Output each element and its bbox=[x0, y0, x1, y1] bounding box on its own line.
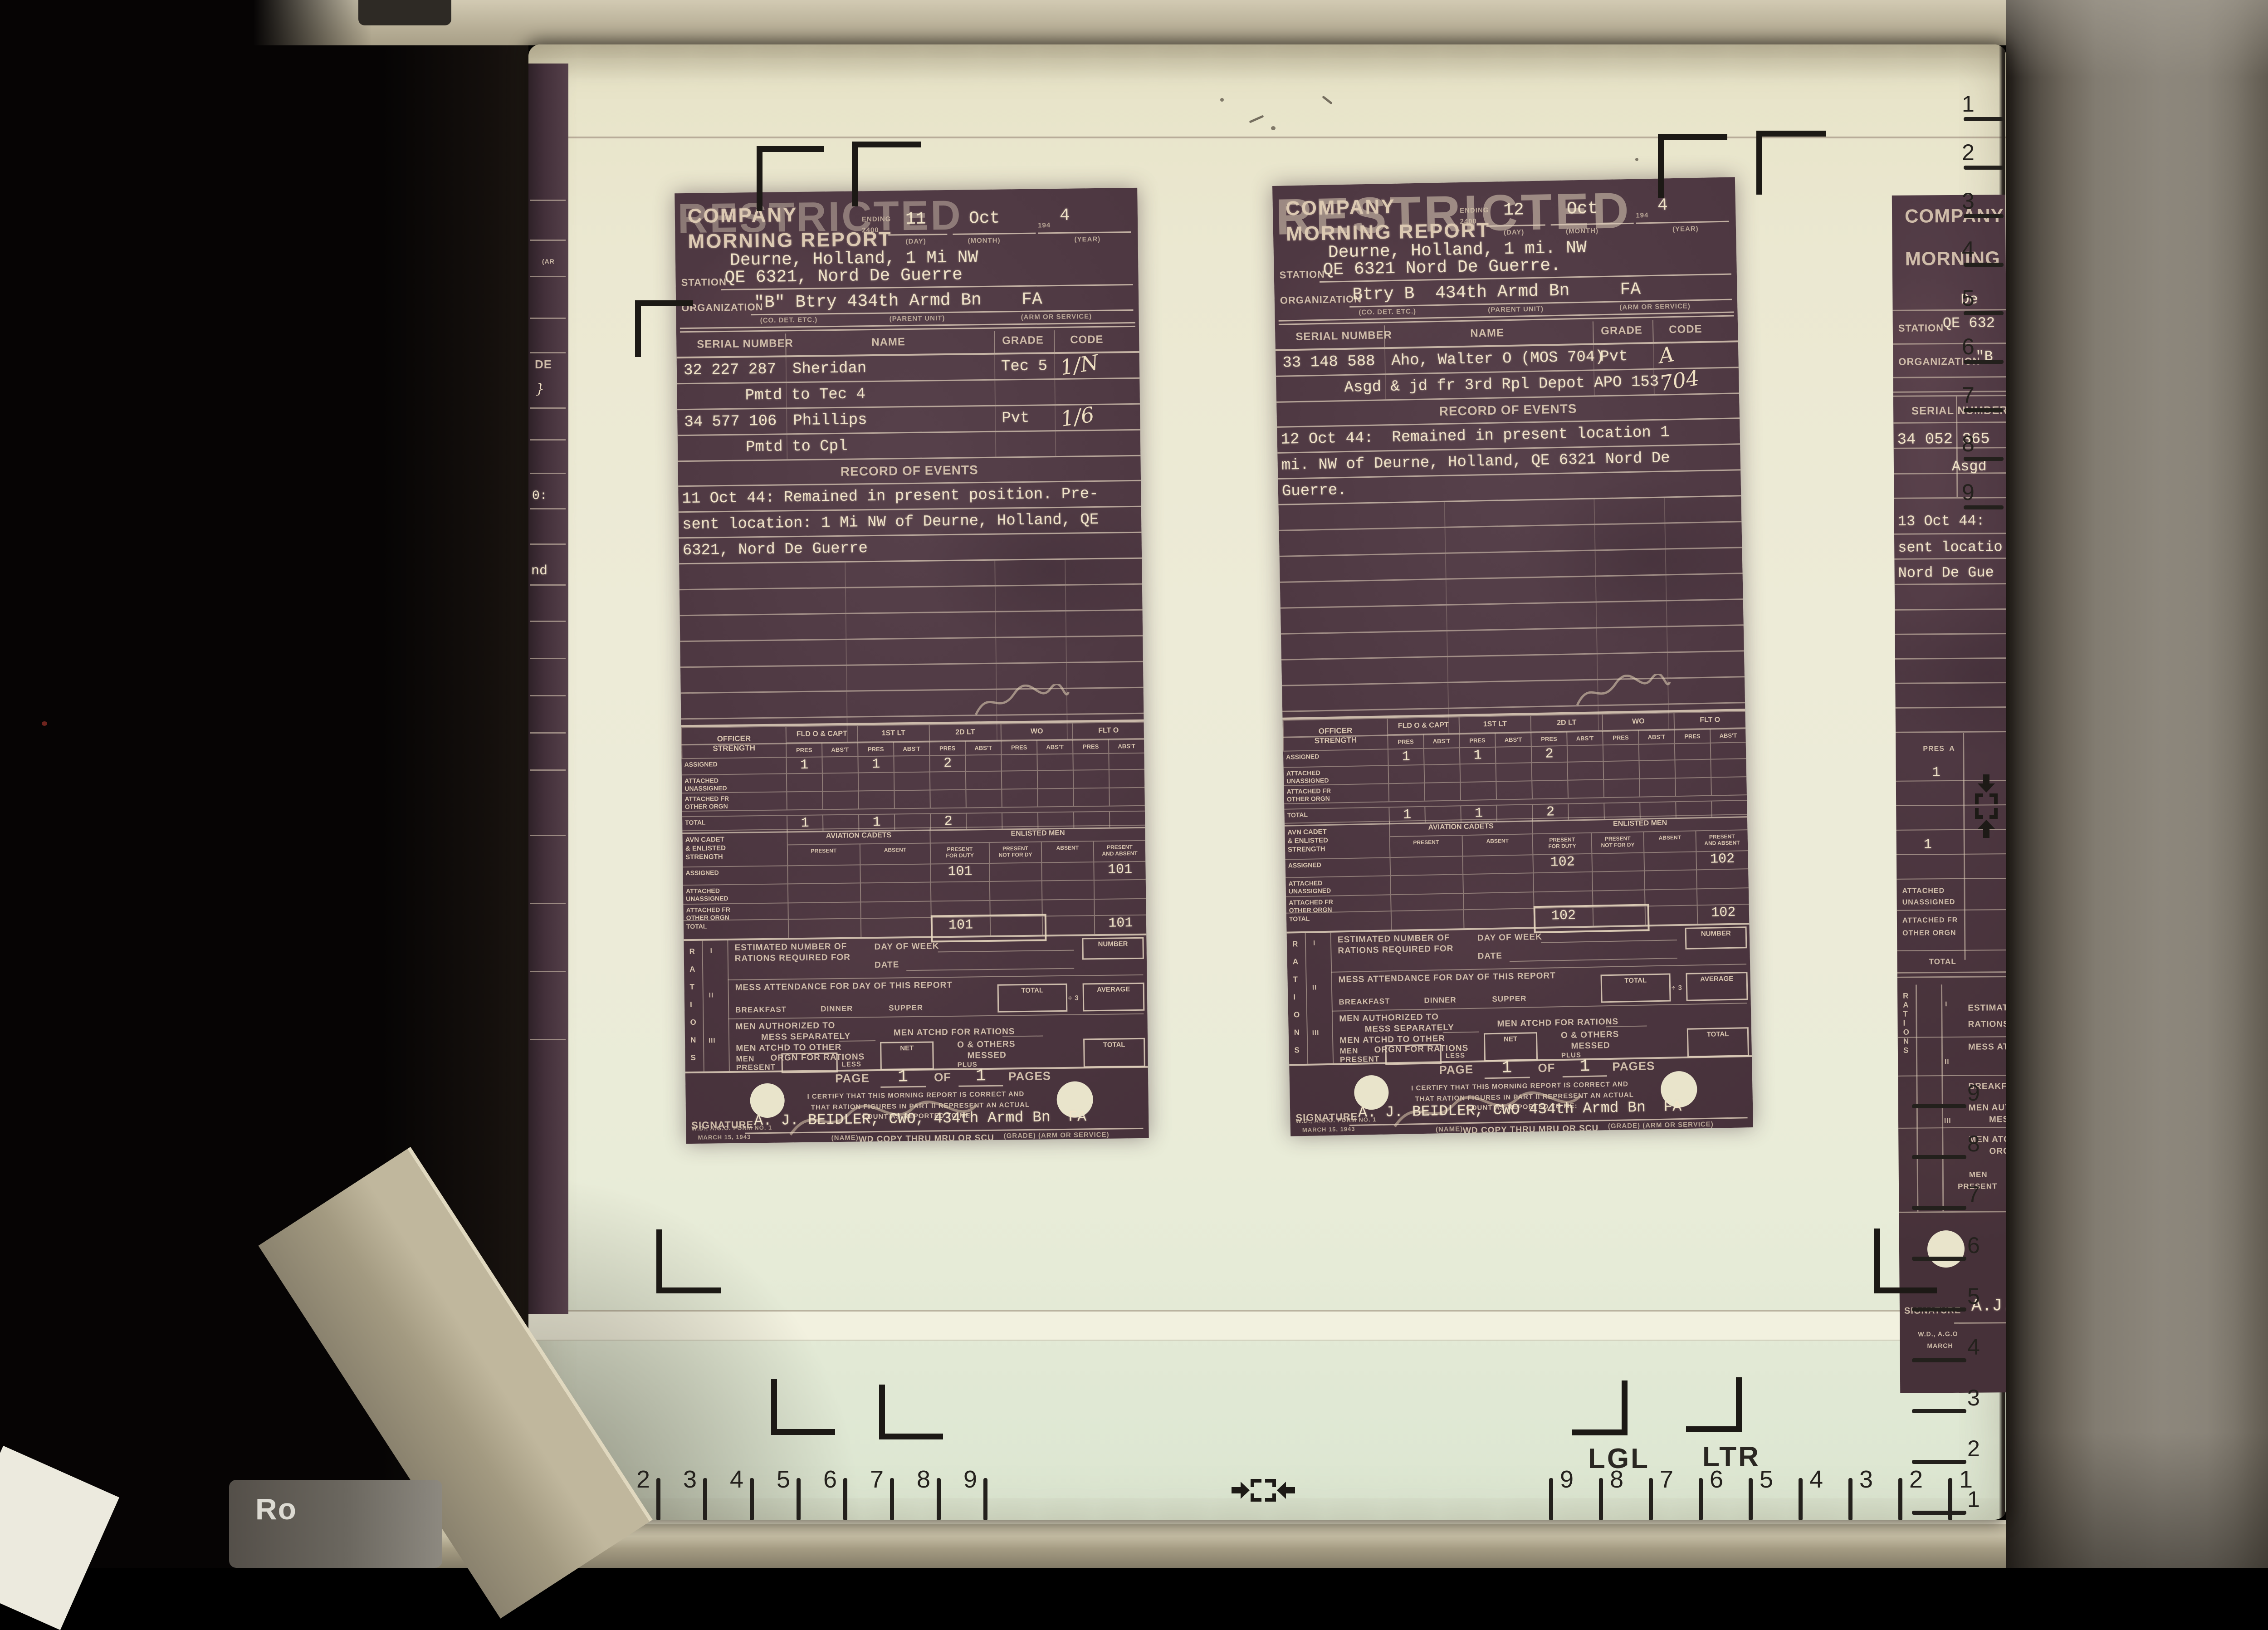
code-col-header: CODE bbox=[1669, 323, 1702, 336]
blank-lines bbox=[1278, 496, 1745, 738]
sliver-rule bbox=[530, 543, 566, 545]
ruler-number: 6 bbox=[1710, 1465, 1723, 1493]
screen-top-shade bbox=[528, 44, 2006, 81]
pres-abst-header: ABS'T bbox=[893, 741, 929, 756]
bezel-vent bbox=[358, 0, 451, 25]
machine-right-housing bbox=[2006, 0, 2268, 1568]
ruler-number: 4 bbox=[1967, 1334, 1980, 1360]
empty-cell bbox=[1463, 891, 1534, 909]
parent-unit-caption: (PARENT UNIT) bbox=[1488, 305, 1544, 314]
partial-doc-text-fragment: sent locatio bbox=[1898, 538, 2003, 556]
empty-cell bbox=[929, 771, 965, 790]
empty-cell bbox=[965, 789, 1001, 808]
year-caption: (YEAR) bbox=[1074, 235, 1100, 244]
attached-fr-other-label: ATTACHED FR OTHER ORGN bbox=[683, 902, 787, 920]
wd-copy-note: WD COPY THRU MRU OR SCU bbox=[1463, 1124, 1599, 1136]
empty-cell bbox=[1109, 769, 1144, 788]
station-label: STATION bbox=[1280, 269, 1325, 281]
supper-label: SUPPER bbox=[889, 1003, 923, 1013]
partial-doc-text-fragment: ESTIMATED NUM bbox=[1968, 1003, 2006, 1013]
enlisted-total-cell bbox=[1463, 908, 1534, 928]
name-value: Sheridan bbox=[792, 360, 867, 378]
empty-cell bbox=[1644, 869, 1696, 889]
corner-mark bbox=[757, 146, 824, 211]
attached-unassigned-label: ATTACHED UNASSIGNED bbox=[682, 773, 786, 793]
ruler-number: 7 bbox=[870, 1465, 884, 1493]
enlisted-sub-header: ABSENT bbox=[1643, 830, 1696, 852]
event-text: sent location: 1 Mi NW of Deurne, Hollan… bbox=[682, 511, 1099, 534]
form-number: W.D., A.G.O. FORM NO. 1 bbox=[691, 1124, 772, 1132]
empty-cell bbox=[989, 881, 1042, 900]
empty-cell bbox=[786, 791, 822, 809]
officer-count-cell: 1 bbox=[857, 756, 893, 773]
attached-fr-other-label: ATTACHED FR OTHER ORGN bbox=[1286, 894, 1391, 912]
mess-attendance-label: MESS ATTENDANCE FOR DAY OF THIS REPORT bbox=[735, 980, 953, 993]
pres-abst-header: PRES bbox=[786, 742, 821, 757]
empty-cell bbox=[1460, 781, 1496, 800]
pres-abst-header: PRES bbox=[1072, 739, 1108, 754]
enlisted-count-cell: 102 bbox=[1696, 850, 1748, 869]
morning-report-form: RESTRICTED COMPANY MORNING REPORT ENDING… bbox=[675, 188, 1149, 1144]
serial-value: 33 148 588 bbox=[1282, 353, 1375, 372]
attached-unassigned-label: ATTACHED UNASSIGNED bbox=[1286, 875, 1390, 896]
empty-cell bbox=[1531, 762, 1567, 781]
average-box: AVERAGE bbox=[1083, 983, 1145, 1012]
estimated-label-2: RATIONS REQUIRED FOR bbox=[1338, 944, 1453, 956]
enlisted-sub-header: PRESENT AND ABSENT bbox=[1695, 829, 1748, 851]
men-present-label: MEN PRESENT bbox=[1339, 1046, 1379, 1064]
co-det-caption: (CO. DET. ETC.) bbox=[760, 316, 818, 324]
pres-abst-header: PRES bbox=[1001, 739, 1036, 754]
event-lines: 12 Oct 44: Remained in present location … bbox=[1277, 419, 1741, 505]
machine-bottom-housing bbox=[435, 1520, 2006, 1568]
avn-cadet-label: AVN CADET & ENLISTED STRENGTH bbox=[1285, 821, 1389, 859]
organization-label: ORGANIZATION bbox=[681, 301, 763, 314]
enlisted-sub-header: PRESENT AND ABSENT bbox=[1093, 840, 1146, 862]
rations-vertical-label: R A T I O N S bbox=[1292, 935, 1300, 1059]
aviation-cadets-header: AVIATION CADETS bbox=[787, 827, 929, 845]
divide-by-3: ÷ 3 bbox=[1068, 994, 1079, 1002]
attached-fr-other-label: ATTACHED FR OTHER ORGN bbox=[1284, 783, 1388, 803]
empty-cell bbox=[1094, 898, 1146, 915]
estimated-label-1: ESTIMATED NUMBER OF bbox=[1338, 933, 1450, 945]
sliver-rule bbox=[530, 695, 566, 696]
partial-doc-text-fragment: MESS ATTENDAN bbox=[1968, 1042, 2006, 1052]
serial-col-header: SERIAL NUMBER bbox=[697, 337, 793, 351]
attached-fr-other-label: ATTACHED FR OTHER ORGN bbox=[682, 791, 786, 811]
ruler-number: 9 bbox=[1967, 1080, 1980, 1106]
ruler-number: 6 bbox=[823, 1465, 837, 1493]
officer-strength-label: OFFICER STRENGTH bbox=[681, 726, 786, 758]
ruler-number: 3 bbox=[1967, 1385, 1980, 1411]
empty-cell bbox=[858, 772, 894, 791]
less-label: LESS bbox=[842, 1060, 861, 1068]
red-indicator-dot bbox=[42, 721, 47, 726]
men-authorized-label: MEN AUTHORIZED TO bbox=[736, 1021, 836, 1032]
corner-mark bbox=[1658, 134, 1727, 198]
machine-top-housing bbox=[254, 0, 2006, 45]
o-and-others-label: O & OTHERS bbox=[957, 1039, 1015, 1050]
officer-group-header: FLD O & CAPT bbox=[1387, 716, 1459, 734]
enlisted-count-cell bbox=[1643, 851, 1696, 870]
enlisted-sub-header: PRESENT NOT FOR DY bbox=[1591, 832, 1643, 853]
empty-cell bbox=[786, 773, 822, 791]
empty-cell bbox=[1109, 787, 1144, 806]
total-row-label: TOTAL bbox=[1286, 910, 1391, 931]
enlisted-sub-header: ABSENT bbox=[860, 843, 930, 865]
attached-unassigned-label: ATTACHED UNASSIGNED bbox=[1284, 765, 1388, 785]
handwritten-initials bbox=[1572, 674, 1672, 712]
partial-doc-text-fragment: OTHER ORGN bbox=[1902, 929, 1956, 938]
roster-and-events: SERIAL NUMBER NAME GRADE CODE 33 148 588… bbox=[1275, 318, 1745, 738]
grade-arm-caption: (GRADE) (ARM OR SERVICE) bbox=[1608, 1121, 1714, 1130]
code-handwritten: 704 bbox=[1658, 365, 1701, 396]
sliver-rule bbox=[530, 621, 566, 622]
officer-group-header: 2D LT bbox=[929, 724, 1001, 741]
co-det-caption: (CO. DET. ETC.) bbox=[1359, 308, 1416, 316]
total-highlight-box bbox=[931, 914, 1047, 942]
officer-count-cell bbox=[893, 755, 929, 772]
sliver-rule bbox=[530, 835, 566, 836]
empty-cell bbox=[1041, 880, 1094, 899]
ending-label: ENDING bbox=[862, 215, 891, 223]
partial-doc-text-fragment: MARCH bbox=[1927, 1342, 1953, 1349]
pres-abst-header: PRES bbox=[1459, 732, 1495, 748]
ruler-number: 8 bbox=[917, 1465, 930, 1493]
year-prefix: 194 bbox=[1038, 221, 1051, 229]
pres-abst-header: PRES bbox=[1387, 734, 1423, 749]
ruler-number: 4 bbox=[1962, 236, 1975, 263]
officer-count-cell bbox=[1674, 743, 1711, 760]
pages-value: 1 bbox=[976, 1066, 986, 1086]
total-box: TOTAL bbox=[997, 984, 1068, 1013]
rations-vertical-label: R A T I O N S bbox=[689, 943, 697, 1067]
morning-report-oct-11: RESTRICTED COMPANY MORNING REPORT ENDING… bbox=[675, 188, 1149, 1144]
partial-doc-text-fragment: ATTACHED bbox=[1902, 887, 1945, 896]
form-date: MARCH 15, 1943 bbox=[698, 1133, 751, 1141]
roman-i: I bbox=[1313, 939, 1315, 947]
officer-strength-table: OFFICER STRENGTH FLD O & CAPT1ST LT2D LT… bbox=[681, 720, 1145, 834]
month-caption: (MONTH) bbox=[1566, 227, 1598, 235]
ruler-number: 6 bbox=[1967, 1232, 1980, 1258]
enlisted-count-cell bbox=[787, 864, 860, 883]
empty-cell bbox=[1073, 769, 1109, 788]
empty-cell bbox=[787, 901, 860, 919]
officer-strength-table: OFFICER STRENGTH FLD O & CAPT1ST LT2D LT… bbox=[1282, 709, 1747, 827]
ruler-number: 8 bbox=[1610, 1465, 1623, 1493]
pres-abst-header: ABS'T bbox=[1423, 733, 1459, 748]
partial-doc-text-fragment: 13 Oct 44: bbox=[1898, 512, 1985, 529]
enlisted-men-header: ENLISTED MEN bbox=[929, 825, 1145, 843]
serial-value: 32 227 287 bbox=[684, 361, 776, 379]
page-label: PAGE bbox=[1439, 1062, 1473, 1077]
empty-cell bbox=[930, 881, 990, 901]
roman-ii: II bbox=[1312, 984, 1317, 991]
pages-label: PAGES bbox=[1008, 1069, 1051, 1083]
officer-group-header: WO bbox=[1001, 723, 1072, 740]
number-box: NUMBER bbox=[1685, 926, 1747, 950]
sliver-text-fragment: nd bbox=[531, 563, 547, 579]
partial-doc-text-fragment: ATTACHED FR bbox=[1902, 916, 1958, 925]
year-prefix: 194 bbox=[1636, 211, 1648, 220]
partial-doc-text-fragment: MESS SE bbox=[1989, 1115, 2006, 1125]
net-box: NET bbox=[1484, 1032, 1538, 1061]
empty-cell bbox=[1388, 764, 1424, 783]
ending-2400-label: 2400 bbox=[862, 226, 879, 234]
empty-cell bbox=[1495, 762, 1531, 781]
roman-i: I bbox=[710, 947, 713, 955]
empty-cell bbox=[822, 772, 858, 791]
empty-cell bbox=[1496, 780, 1532, 799]
empty-cell bbox=[1603, 760, 1639, 779]
ending-month-value: Oct bbox=[1567, 199, 1598, 219]
empty-cell bbox=[1639, 778, 1675, 797]
ruler-number: 7 bbox=[1660, 1465, 1673, 1493]
corner-mark bbox=[771, 1379, 835, 1435]
ruler-number: 2 bbox=[1967, 1435, 1980, 1462]
assigned-row-label: ASSIGNED bbox=[681, 757, 786, 774]
pages-value: 1 bbox=[1579, 1057, 1590, 1076]
name-value: Phillips bbox=[793, 411, 867, 430]
ruler-number: 7 bbox=[1962, 382, 1975, 408]
officer-group-header: 1ST LT bbox=[857, 724, 929, 742]
enlisted-total-cell bbox=[1042, 915, 1095, 935]
estimated-label-1: ESTIMATED NUMBER OF bbox=[734, 942, 847, 953]
name-caption: (NAME) bbox=[831, 1134, 859, 1142]
total-row-label: TOTAL bbox=[684, 919, 788, 939]
partial-doc-text-fragment: STATION bbox=[1898, 322, 1944, 334]
empty-cell bbox=[1533, 871, 1592, 891]
empty-cell bbox=[1531, 780, 1568, 799]
enlisted-total-cell bbox=[1391, 909, 1464, 930]
partial-doc-text-fragment: 34 052 365 bbox=[1897, 431, 1989, 448]
ruler-number: 4 bbox=[1809, 1465, 1823, 1493]
empty-cell bbox=[1603, 778, 1639, 798]
roman-iii: III bbox=[1312, 1029, 1320, 1037]
ruler-number: 3 bbox=[1859, 1465, 1873, 1493]
enlisted-sub-header: PRESENT NOT FOR DY bbox=[989, 842, 1041, 863]
empty-cell bbox=[1037, 770, 1073, 788]
enlisted-sub-header: PRESENT FOR DUTY bbox=[1532, 832, 1591, 854]
ruler-number: 5 bbox=[1967, 1283, 1980, 1309]
grade-col-header: GRADE bbox=[1002, 334, 1044, 347]
sliver-text-fragment: DE bbox=[535, 357, 552, 372]
empty-cell bbox=[1674, 759, 1711, 778]
pres-abst-header: ABS'T bbox=[1638, 729, 1674, 744]
event-text: 12 Oct 44: Remained in present location … bbox=[1281, 424, 1670, 448]
men-present-box bbox=[1385, 1044, 1442, 1065]
arm-service-caption: (ARM OR SERVICE) bbox=[1021, 313, 1092, 321]
number-box: NUMBER bbox=[1082, 937, 1144, 960]
empty-cell bbox=[1567, 779, 1603, 798]
empty-cell bbox=[1675, 777, 1711, 796]
year-caption: (YEAR) bbox=[1672, 225, 1699, 233]
serial-col-header: SERIAL NUMBER bbox=[1295, 329, 1392, 343]
partial-doc-text-fragment: ORGN FO bbox=[1989, 1146, 2006, 1157]
day-caption: (DAY) bbox=[905, 238, 926, 246]
sliver-text-fragment: 0: bbox=[532, 489, 547, 503]
partial-doc-text-fragment: I bbox=[1945, 1000, 1947, 1008]
name-value: Aho, Walter O (MOS 704) bbox=[1391, 348, 1604, 370]
enlisted-strength-table: AVN CADET & ENLISTED STRENGTH AVIATION C… bbox=[682, 825, 1146, 941]
day-of-week-label: DAY OF WEEK bbox=[1477, 932, 1542, 944]
officer-group-header: FLT O bbox=[1072, 722, 1144, 739]
event-text: mi. NW of Deurne, Holland, QE 6321 Nord … bbox=[1281, 450, 1670, 474]
brand-text: Ro bbox=[255, 1492, 297, 1526]
attached-unassigned-label: ATTACHED UNASSIGNED bbox=[683, 883, 787, 904]
empty-cell bbox=[1696, 868, 1749, 888]
morning-report-oct-12: RESTRICTED COMPANY MORNING REPORT ENDING… bbox=[1272, 177, 1753, 1136]
enlisted-count-cell bbox=[989, 862, 1041, 881]
name-col-header: NAME bbox=[871, 336, 905, 349]
enlisted-count-cell bbox=[1591, 852, 1644, 871]
ruler-number: 1 bbox=[1967, 1486, 1980, 1513]
officer-count-cell bbox=[1072, 753, 1108, 770]
empty-cell bbox=[1638, 759, 1675, 778]
code-handwritten: 1/N bbox=[1058, 350, 1100, 380]
men-authorized-label: MEN AUTHORIZED TO bbox=[1339, 1012, 1439, 1024]
arm-value: FA bbox=[1022, 289, 1042, 309]
ruler-number: 8 bbox=[1967, 1131, 1980, 1157]
page-value: 1 bbox=[1501, 1058, 1512, 1077]
roster-rows: 32 227 287 Sheridan Tec 5 1/N Pmtd to Te… bbox=[677, 353, 1141, 462]
horizontal-center-alignment-icon bbox=[1231, 1476, 1296, 1504]
empty-cell bbox=[787, 882, 860, 902]
grade-arm-caption: (GRADE) (ARM OR SERVICE) bbox=[1004, 1131, 1110, 1140]
mess-separately-label: MESS SEPARATELY bbox=[761, 1032, 851, 1043]
supper-label: SUPPER bbox=[1492, 994, 1526, 1004]
enlisted-sub-header: ABSENT bbox=[1041, 841, 1094, 862]
pres-abst-header: ABS'T bbox=[1495, 731, 1531, 747]
officer-count-cell bbox=[1567, 744, 1603, 762]
morning-report-form: RESTRICTED COMPANY MORNING REPORT ENDING… bbox=[1272, 177, 1753, 1136]
name-caption: (NAME) bbox=[1436, 1125, 1463, 1133]
estimated-label-2: RATIONS REQUIRED FOR bbox=[735, 953, 850, 964]
partial-doc-text-fragment: R A T I O N S bbox=[1903, 992, 1910, 1055]
ending-2400-label: 2400 bbox=[1460, 217, 1477, 225]
officer-count-cell bbox=[1710, 742, 1746, 759]
empty-cell bbox=[1001, 770, 1037, 789]
photo-of-microfilm-reader: { "machine": {"ro_label":"Ro","lgl":"LGL… bbox=[0, 0, 2268, 1568]
ruler-number: 2 bbox=[1962, 139, 1975, 166]
partial-doc-text-fragment: PRES A bbox=[1923, 745, 1955, 753]
grade-col-header: GRADE bbox=[1601, 324, 1642, 338]
sliver-rule bbox=[530, 439, 566, 441]
grade-value: Pvt bbox=[1002, 410, 1030, 427]
ruler-number: 8 bbox=[1962, 431, 1975, 457]
enlisted-total-cell bbox=[860, 917, 931, 937]
empty-cell bbox=[858, 790, 894, 809]
arm-value: FA bbox=[1620, 279, 1641, 299]
net-box: NET bbox=[880, 1041, 934, 1070]
sliver-rule bbox=[530, 903, 566, 904]
total-highlight-box bbox=[1534, 904, 1650, 933]
pres-abst-header: PRES bbox=[1674, 728, 1710, 744]
sliver-rule bbox=[530, 769, 566, 771]
serial-value: Pmtd to Tec 4 bbox=[745, 386, 865, 404]
corner-mark bbox=[1756, 131, 1826, 195]
sliver-rule bbox=[530, 658, 566, 659]
sliver-rule bbox=[530, 1039, 566, 1040]
machine-brand-panel: Ro bbox=[229, 1480, 442, 1568]
sliver-rule bbox=[530, 473, 566, 474]
officer-count-cell bbox=[821, 756, 857, 773]
rations-section: R A T I O N S I II III ESTIMATED NUMBER … bbox=[684, 935, 1148, 1073]
day-caption: (DAY) bbox=[1504, 228, 1525, 236]
ruler-number: 9 bbox=[963, 1465, 977, 1493]
event-lines: 11 Oct 44: Remained in present position.… bbox=[678, 481, 1142, 564]
empty-cell bbox=[1696, 887, 1749, 905]
enlisted-sub-header: PRESENT FOR DUTY bbox=[930, 842, 989, 864]
breakfast-label: BREAKFAST bbox=[1339, 997, 1390, 1007]
empty-cell bbox=[1001, 788, 1037, 807]
ending-year-value: 4 bbox=[1060, 206, 1070, 225]
average-box: AVERAGE bbox=[1686, 972, 1748, 1001]
ruler-number: 2 bbox=[1909, 1465, 1923, 1493]
record-of-events-title: RECORD OF EVENTS bbox=[1439, 401, 1577, 418]
plus-label: PLUS bbox=[958, 1061, 978, 1069]
assigned-row-label: ASSIGNED bbox=[1283, 749, 1388, 767]
enlisted-sub-header: PRESENT bbox=[1389, 835, 1462, 857]
ruler-number: 1 bbox=[1962, 91, 1975, 117]
o-and-others-label: O & OTHERS bbox=[1561, 1030, 1619, 1041]
corner-mark bbox=[635, 300, 693, 357]
partial-doc-text-fragment: UNASSIGNED bbox=[1902, 898, 1955, 907]
enlisted-count-cell: 101 bbox=[930, 863, 989, 882]
ending-day-value: 12 bbox=[1503, 200, 1524, 220]
officer-count-cell bbox=[1638, 743, 1675, 760]
empty-cell bbox=[1711, 776, 1747, 795]
men-atchd-rations-label: MEN ATCHD FOR RATIONS bbox=[1497, 1017, 1618, 1029]
enlisted-count-cell bbox=[1462, 854, 1533, 874]
avn-cadet-label: AVN CADET & ENLISTED STRENGTH bbox=[682, 829, 787, 866]
roster-rows: 33 148 588 Aho, Walter O (MOS 704) Pvt A… bbox=[1276, 342, 1739, 403]
page-value: 1 bbox=[898, 1067, 908, 1087]
empty-cell bbox=[894, 772, 929, 790]
empty-cell bbox=[1644, 888, 1697, 906]
ending-year-value: 4 bbox=[1657, 196, 1668, 215]
month-caption: (MONTH) bbox=[968, 237, 1000, 245]
officer-count-cell bbox=[1423, 747, 1460, 764]
officer-group-header: 2D LT bbox=[1530, 714, 1602, 731]
partial-doc-text-fragment: 1 bbox=[1924, 837, 1932, 852]
enlisted-count-cell: 101 bbox=[1093, 861, 1145, 880]
enlisted-count-cell: 102 bbox=[1532, 853, 1592, 872]
roman-iii: III bbox=[709, 1037, 716, 1044]
partial-doc-text-fragment: Nord De Gue bbox=[1898, 564, 1994, 581]
mess-attendance-label: MESS ATTENDANCE FOR DAY OF THIS REPORT bbox=[1338, 971, 1556, 985]
pages-label: PAGES bbox=[1612, 1059, 1655, 1074]
officer-count-cell bbox=[1001, 754, 1036, 771]
parent-unit-caption: (PARENT UNIT) bbox=[890, 314, 945, 323]
empty-cell bbox=[1567, 761, 1603, 780]
ruler-number: 5 bbox=[1760, 1465, 1773, 1493]
code-handwritten: 1/6 bbox=[1059, 402, 1096, 431]
roster-and-events: SERIAL NUMBER NAME GRADE CODE 32 227 287… bbox=[676, 329, 1144, 745]
empty-cell bbox=[1094, 879, 1146, 899]
dinner-label: DINNER bbox=[821, 1004, 853, 1014]
empty-cell bbox=[965, 771, 1001, 789]
officer-count-cell: 1 bbox=[1459, 747, 1496, 764]
of-label: OF bbox=[1538, 1061, 1555, 1075]
form-date: MARCH 15, 1943 bbox=[1302, 1126, 1355, 1133]
page-label: PAGE bbox=[835, 1071, 870, 1086]
enlisted-strength-table: AVN CADET & ENLISTED STRENGTH AVIATION C… bbox=[1285, 814, 1749, 934]
officer-count-cell bbox=[965, 754, 1001, 771]
empty-cell bbox=[1424, 782, 1460, 801]
ruler-number: 4 bbox=[730, 1465, 743, 1493]
corner-mark bbox=[852, 142, 921, 206]
